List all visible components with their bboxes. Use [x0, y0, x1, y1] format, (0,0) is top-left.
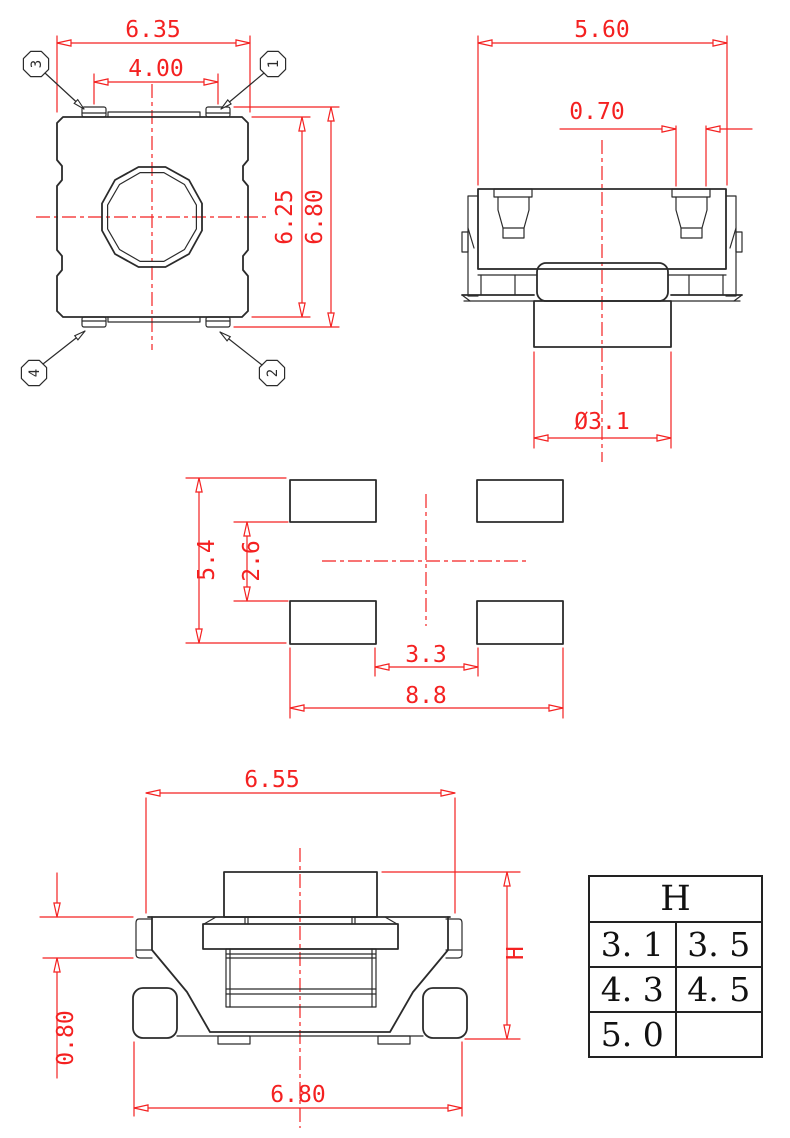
land-pattern-view: 5.4 2.6 3.3 8.8	[186, 478, 563, 718]
bottom-pad-left	[218, 1036, 250, 1044]
dim-label-pad-inner-horizontal: 3.3	[405, 642, 447, 668]
terminal-bottom-right	[206, 317, 230, 327]
bottom-pad-right	[378, 1036, 410, 1044]
dimension-terminal-height: 0.80	[40, 873, 133, 1078]
dimension-front-top-width: 6.55	[146, 767, 455, 913]
pin-balloon-4-label: 4	[27, 369, 43, 377]
dimension-front-bottom-width: 6.80	[134, 1042, 462, 1116]
dim-label-terminal-height: 0.80	[53, 1010, 79, 1065]
dim-label-terminal-width: 0.70	[569, 99, 624, 125]
pad-bottom-right	[477, 601, 563, 644]
height-table-header: H	[589, 876, 762, 922]
dim-label-pad-inner-vertical: 2.6	[239, 540, 265, 582]
front-view: 6.55 6.80 0.80 H	[40, 767, 529, 1128]
inner-frame	[226, 949, 376, 1007]
dim-label-stem-diameter: Ø3.1	[574, 409, 629, 435]
height-options-table: H 3. 1 3. 5 4. 3 4. 5 5. 0	[588, 875, 763, 1058]
pad-top-right	[477, 480, 563, 522]
pin-balloon-1-label: 1	[266, 60, 282, 68]
height-cell	[676, 1012, 763, 1057]
dim-label-pin-span: 4.00	[128, 56, 183, 82]
dimension-pad-inner-horizontal: 3.3	[375, 642, 478, 676]
dimension-pad-outer-vertical: 5.4	[186, 478, 286, 643]
engineering-drawing-sheet: 6.35 4.00 6.25 6.80	[0, 0, 790, 1138]
pin-balloon-4: 4	[21, 329, 86, 386]
dim-label-pad-outer-vertical: 5.4	[194, 539, 220, 581]
pad-bottom-left	[290, 601, 376, 644]
dim-label-top-width: 6.35	[125, 17, 180, 43]
side-view: 5.60 0.70 Ø3.1	[462, 17, 752, 462]
height-cell: 5. 0	[589, 1012, 676, 1057]
pin-balloon-3-label: 3	[29, 60, 45, 68]
dim-label-body-height: 6.25	[272, 189, 298, 244]
side-tab-left	[462, 196, 478, 296]
dim-label-pad-outer-horizontal: 8.8	[405, 683, 447, 709]
foot-left	[133, 988, 177, 1038]
dimension-pin-span: 4.00	[94, 56, 218, 104]
foot-right	[423, 988, 467, 1038]
height-cell: 3. 5	[676, 922, 763, 967]
pad-top-left	[290, 480, 376, 522]
pin-balloon-2: 2	[218, 330, 284, 386]
pin-balloon-2-label: 2	[265, 369, 281, 377]
clip-left	[494, 189, 532, 238]
dim-label-front-top-width: 6.55	[244, 767, 299, 793]
side-tab-right	[726, 196, 742, 296]
dimension-pad-inner-vertical: 2.6	[234, 522, 288, 601]
top-view: 6.35 4.00 6.25 6.80	[21, 17, 339, 386]
height-cell: 3. 1	[589, 922, 676, 967]
height-cell: 4. 5	[676, 967, 763, 1012]
dim-label-front-bottom-width: 6.80	[270, 1082, 325, 1108]
dim-label-side-width: 5.60	[574, 17, 629, 43]
dim-label-overall-height: 6.80	[302, 189, 328, 244]
dimension-terminal-width: 0.70	[560, 99, 752, 186]
terminal-bottom-left	[82, 317, 106, 327]
front-terminal-left	[136, 919, 152, 958]
terminal-top-right	[206, 107, 230, 117]
clip-right	[672, 189, 710, 238]
pin-balloon-1: 1	[219, 51, 285, 111]
height-cell: 4. 3	[589, 967, 676, 1012]
pin-balloon-3: 3	[23, 51, 85, 111]
dim-label-height-h: H	[503, 946, 529, 960]
terminal-top-left	[82, 107, 106, 117]
